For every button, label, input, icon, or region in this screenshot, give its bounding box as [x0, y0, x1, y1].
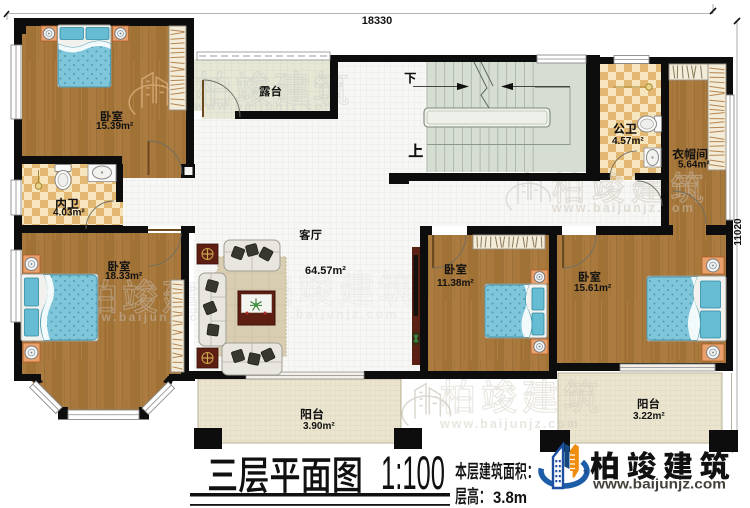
svg-text:64.57m²: 64.57m²: [305, 265, 346, 277]
svg-text:www.baijunjz.com: www.baijunjz.com: [439, 417, 580, 431]
svg-text:3.8m: 3.8m: [493, 488, 527, 507]
svg-text:3.22m²: 3.22m²: [633, 411, 665, 422]
svg-text:15.61m²: 15.61m²: [574, 283, 612, 294]
svg-text:15.39m²: 15.39m²: [96, 121, 134, 132]
svg-text:www.baijunjz.com: www.baijunjz.com: [551, 201, 695, 215]
svg-text:4.03m²: 4.03m²: [53, 208, 85, 219]
svg-text:1:100: 1:100: [381, 446, 445, 499]
svg-text:11.38m²: 11.38m²: [437, 278, 474, 289]
svg-text:18.33m²: 18.33m²: [105, 271, 143, 282]
svg-text:11020: 11020: [733, 218, 744, 246]
svg-text:3.90m²: 3.90m²: [303, 421, 335, 432]
svg-text:www.baijunjz.com: www.baijunjz.com: [193, 99, 338, 113]
svg-text:5.64m²: 5.64m²: [678, 160, 710, 171]
svg-text:www.baijunjz.com: www.baijunjz.com: [592, 477, 726, 492]
svg-text:4.57m²: 4.57m²: [612, 136, 644, 147]
svg-text:18330: 18330: [362, 15, 393, 27]
